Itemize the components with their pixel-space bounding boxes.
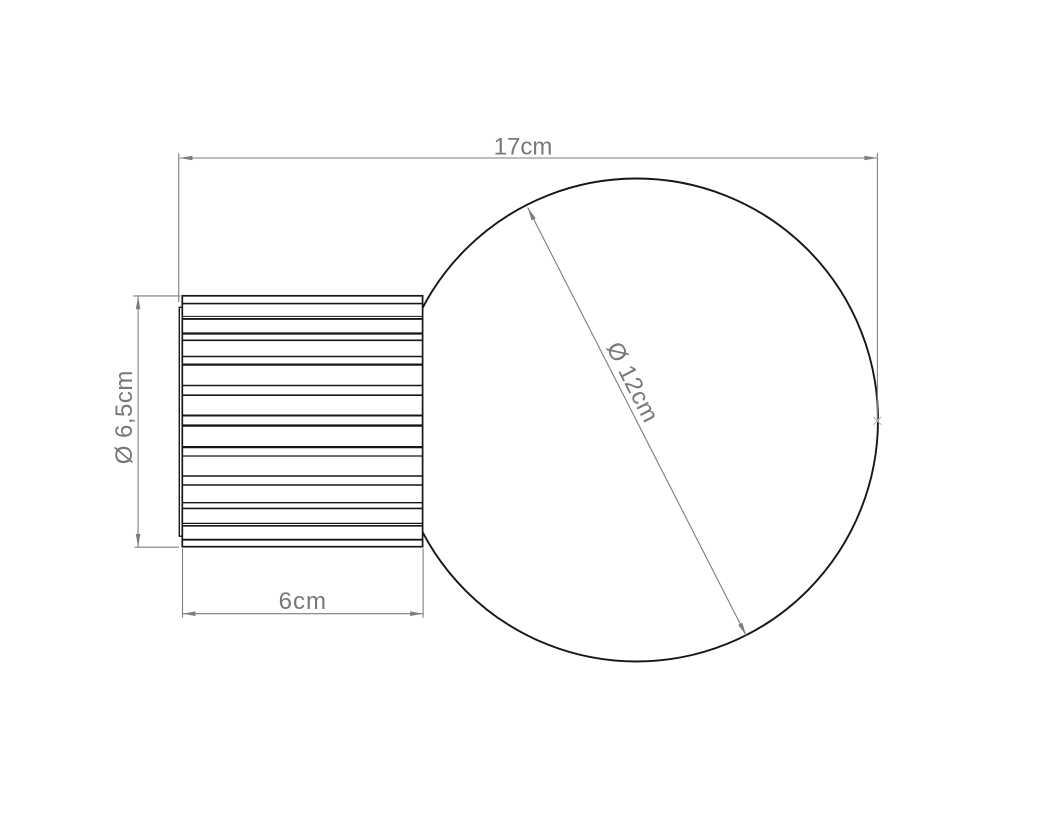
svg-text:6cm: 6cm: [279, 588, 327, 615]
svg-text:Ø 6,5cm: Ø 6,5cm: [111, 370, 138, 464]
svg-text:17cm: 17cm: [494, 133, 553, 160]
